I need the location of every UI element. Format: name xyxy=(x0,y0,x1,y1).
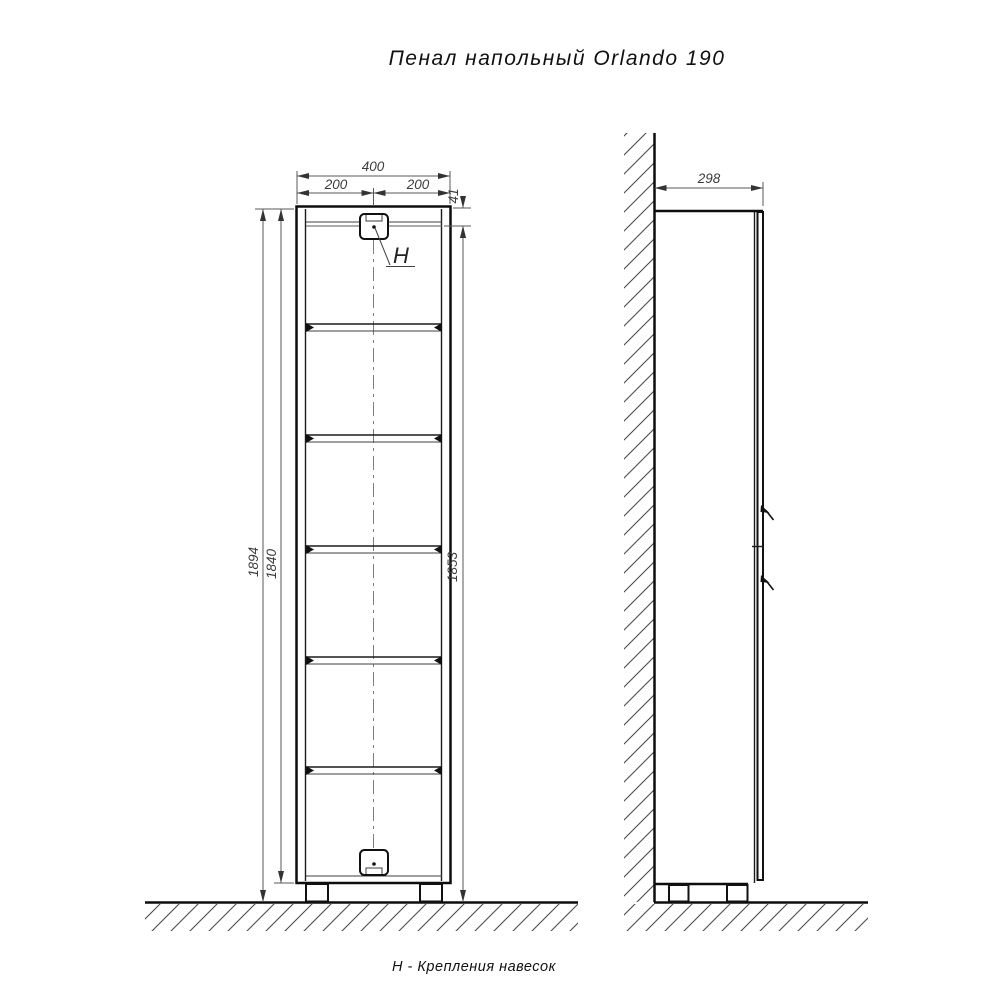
front-left-foot xyxy=(306,884,328,902)
bottom-hanging-bracket xyxy=(360,850,388,875)
footnote: Н - Крепления навесок xyxy=(392,959,557,975)
dim-top-offset: 41 xyxy=(446,188,461,203)
front-view: H xyxy=(145,207,578,932)
side-back-foot xyxy=(669,885,689,902)
top-hanging-bracket xyxy=(360,214,388,239)
dim-width-right: 200 xyxy=(406,177,430,192)
side-floor-hatch xyxy=(624,904,868,931)
dim-height-body: 1840 xyxy=(264,548,279,579)
dim-bracket-to-floor: 1853 xyxy=(445,551,460,582)
side-view: 298 xyxy=(624,133,868,931)
side-front-foot xyxy=(727,885,748,902)
dim-height-overall: 1894 xyxy=(246,547,261,577)
drawing-title: Пенал напольный Orlando 190 xyxy=(389,47,726,70)
drawing-canvas: Пенал напольный Orlando 190 xyxy=(0,0,1000,1000)
front-right-foot xyxy=(420,884,442,902)
dim-width-total: 400 xyxy=(362,159,385,174)
bracket-label: H xyxy=(393,243,409,268)
front-floor-hatch xyxy=(145,904,578,931)
technical-drawing-page: Пенал напольный Orlando 190 xyxy=(0,0,1000,1000)
wall-hatch xyxy=(624,133,654,902)
dim-width-left: 200 xyxy=(324,177,348,192)
dim-depth: 298 xyxy=(697,171,721,186)
